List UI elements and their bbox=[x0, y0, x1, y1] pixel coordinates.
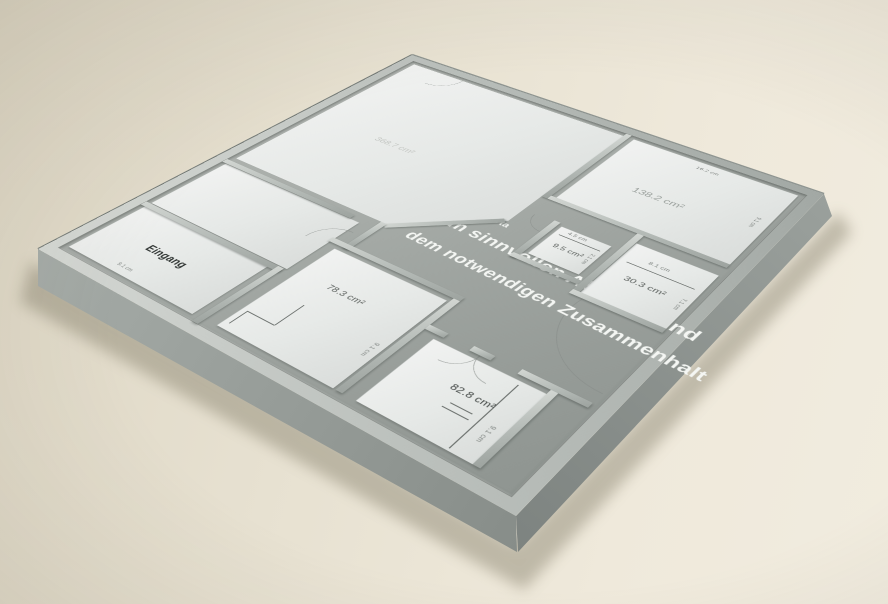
photo-of-floorplan-box: Yasutomo Ota Vom sinnvollen Abstand und … bbox=[0, 0, 888, 604]
